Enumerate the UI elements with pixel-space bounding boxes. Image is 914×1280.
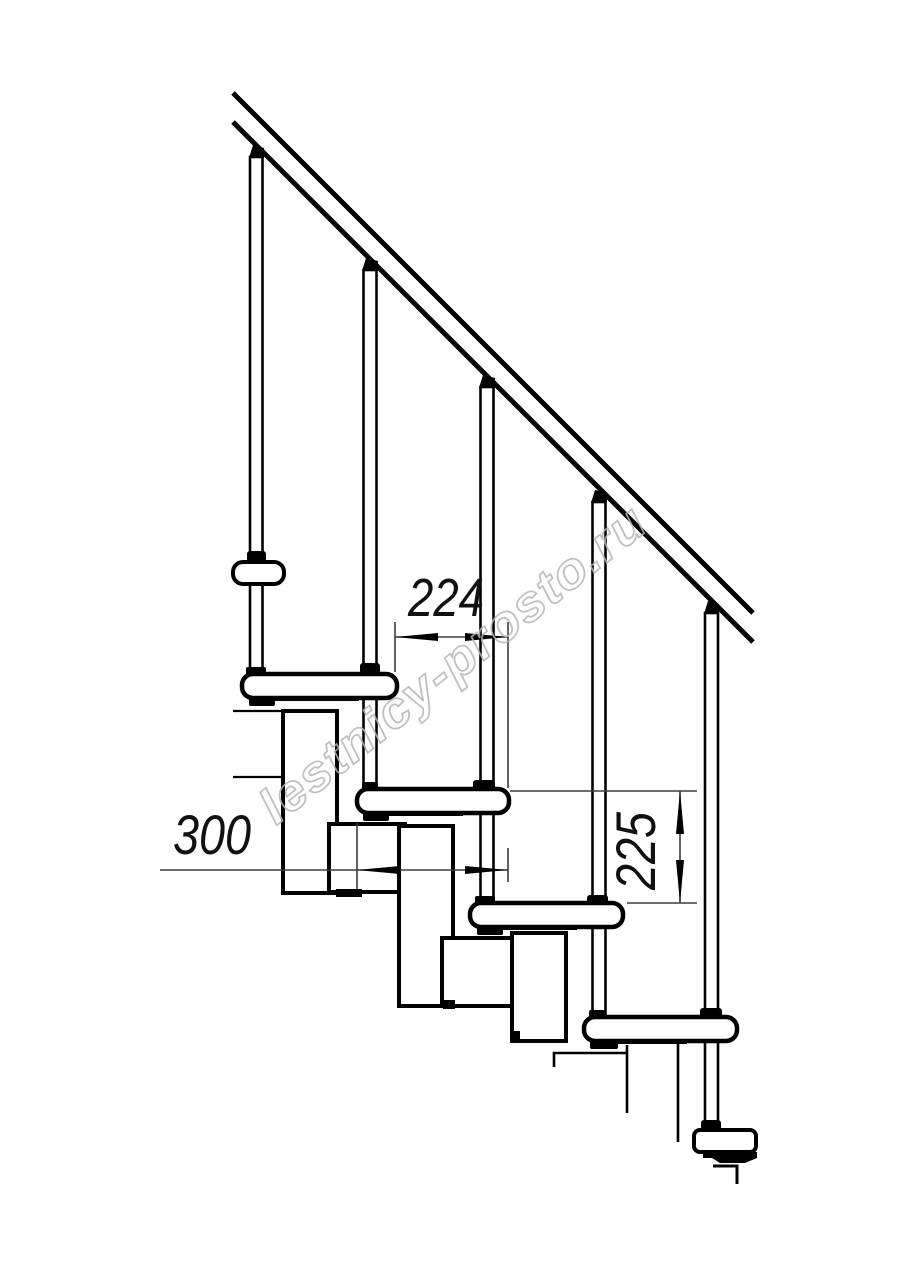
rail-wedge-3	[479, 375, 495, 388]
drawing-canvas: 224 300 225 lestnicy-prosto.ru	[0, 0, 914, 1280]
wall-bracket	[233, 551, 284, 584]
module-sleeve-2	[329, 824, 405, 892]
collar-b5-tread4	[700, 1008, 722, 1018]
collar-b2-tread1	[360, 663, 380, 675]
tread-3-bracket	[477, 925, 503, 935]
rail-wedge-2	[362, 258, 378, 271]
foot-b2-tread2	[362, 782, 378, 789]
foot-b1-tread1	[246, 667, 266, 675]
tread-4	[584, 1017, 737, 1041]
tread-4-bracket	[590, 1039, 618, 1049]
rail-wedge-1	[249, 145, 264, 158]
tread-2	[357, 789, 509, 813]
floor-step-line	[713, 1166, 737, 1184]
module-joint-nub-3	[511, 1031, 520, 1041]
foot-b4-tread4	[589, 1010, 605, 1017]
foot-plate	[694, 1130, 756, 1152]
baluster-1	[250, 157, 263, 675]
dim-300-label: 300	[173, 803, 251, 866]
dim-225-label: 225	[604, 811, 667, 891]
foot-b3-tread3	[475, 896, 495, 904]
baluster-5	[705, 613, 718, 1131]
bottom-foot	[694, 1130, 757, 1184]
collar-b3-tread2	[473, 780, 495, 791]
foot-bracket	[703, 1152, 757, 1163]
dim-225-arrow-bottom	[676, 860, 684, 903]
dim-224-arrow-left	[395, 633, 438, 641]
module-joint-nub-1	[336, 889, 362, 897]
staircase-drawing: 224 300 225 lestnicy-prosto.ru	[0, 0, 914, 1280]
wall-bracket-body	[233, 562, 284, 584]
tread-3	[470, 903, 623, 927]
module-joint-nub-2	[443, 1000, 455, 1009]
dim-225-arrow-top	[676, 791, 684, 834]
module-sleeve-3	[442, 938, 518, 1006]
tread-1-bracket	[249, 696, 275, 706]
module-sleeve-4-outline	[554, 1053, 627, 1067]
module-column-3	[512, 933, 566, 1041]
tread-2-bracket	[363, 811, 389, 821]
collar-b4-tread3	[587, 895, 608, 905]
